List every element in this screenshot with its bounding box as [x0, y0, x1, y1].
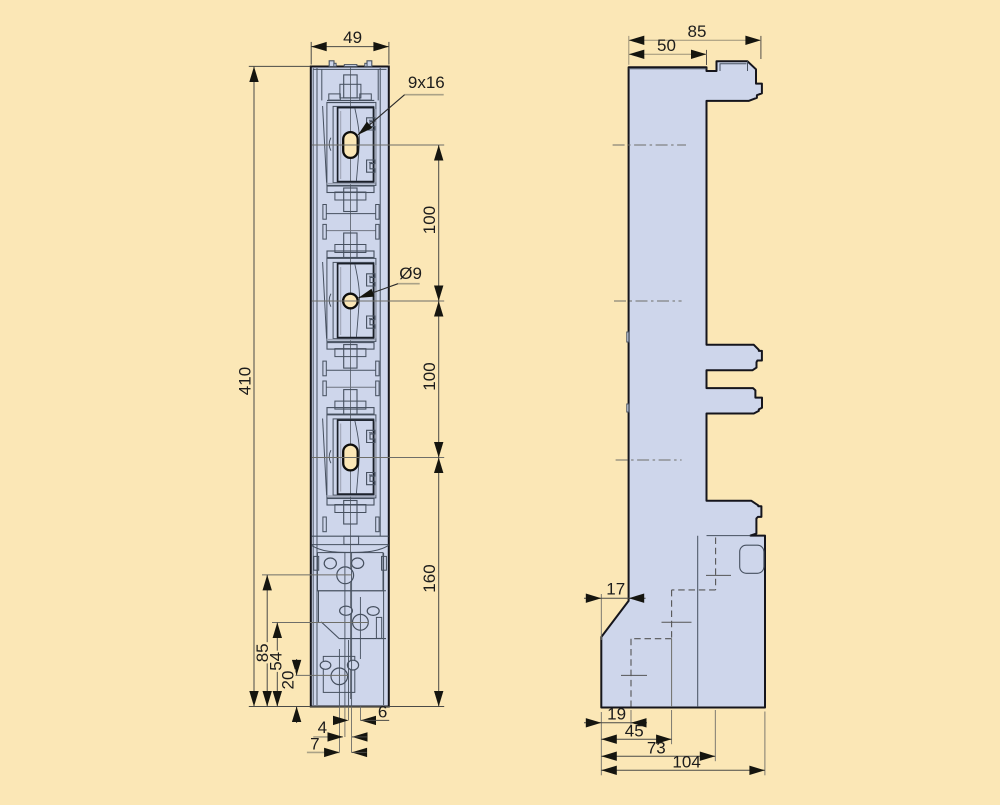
svg-text:17: 17	[606, 580, 625, 599]
svg-text:6: 6	[378, 702, 387, 721]
svg-text:100: 100	[420, 362, 439, 390]
svg-text:7: 7	[310, 734, 319, 753]
svg-text:49: 49	[343, 28, 362, 47]
svg-text:20: 20	[279, 671, 298, 690]
svg-text:410: 410	[236, 367, 255, 395]
svg-text:85: 85	[688, 22, 707, 41]
svg-text:54: 54	[266, 652, 285, 671]
svg-text:160: 160	[420, 564, 439, 592]
svg-text:19: 19	[607, 705, 626, 724]
svg-text:45: 45	[625, 721, 644, 740]
svg-text:100: 100	[420, 206, 439, 234]
svg-text:104: 104	[672, 752, 700, 771]
svg-text:73: 73	[647, 738, 666, 757]
svg-text:9x16: 9x16	[408, 73, 445, 92]
svg-text:50: 50	[657, 36, 676, 55]
svg-text:Ø9: Ø9	[399, 264, 422, 283]
